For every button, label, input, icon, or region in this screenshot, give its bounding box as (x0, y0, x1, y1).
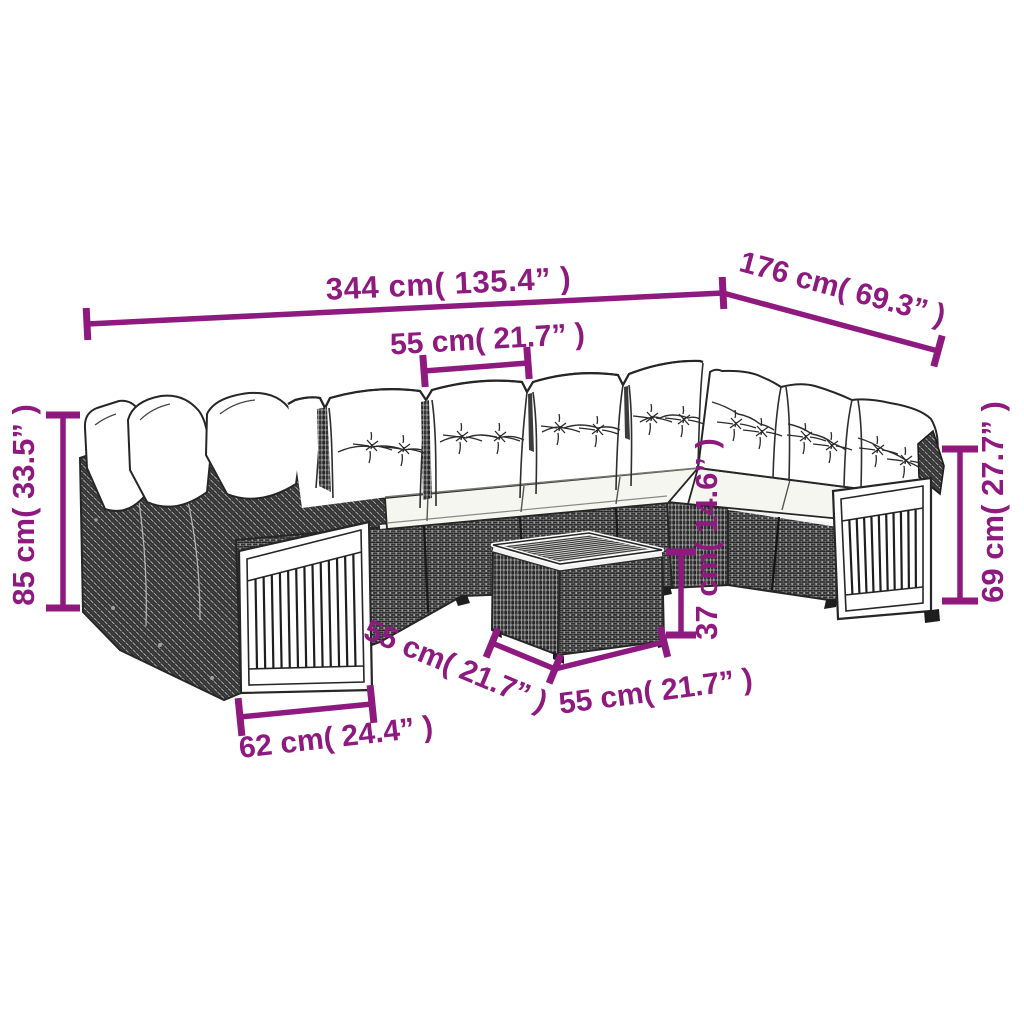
svg-text:55 cm( 21.7” ): 55 cm( 21.7” ) (389, 318, 586, 362)
svg-text:37 cm( 14.6” ): 37 cm( 14.6” ) (689, 438, 724, 640)
svg-text:62 cm( 24.4” ): 62 cm( 24.4” ) (237, 710, 435, 765)
svg-text:85 cm( 33.5” ): 85 cm( 33.5” ) (6, 404, 41, 606)
svg-text:176 cm( 69.3” ): 176 cm( 69.3” ) (736, 245, 949, 332)
svg-text:55 cm( 21.7” ): 55 cm( 21.7” ) (557, 662, 755, 720)
svg-text:69 cm( 27.7” ): 69 cm( 27.7” ) (975, 401, 1010, 603)
